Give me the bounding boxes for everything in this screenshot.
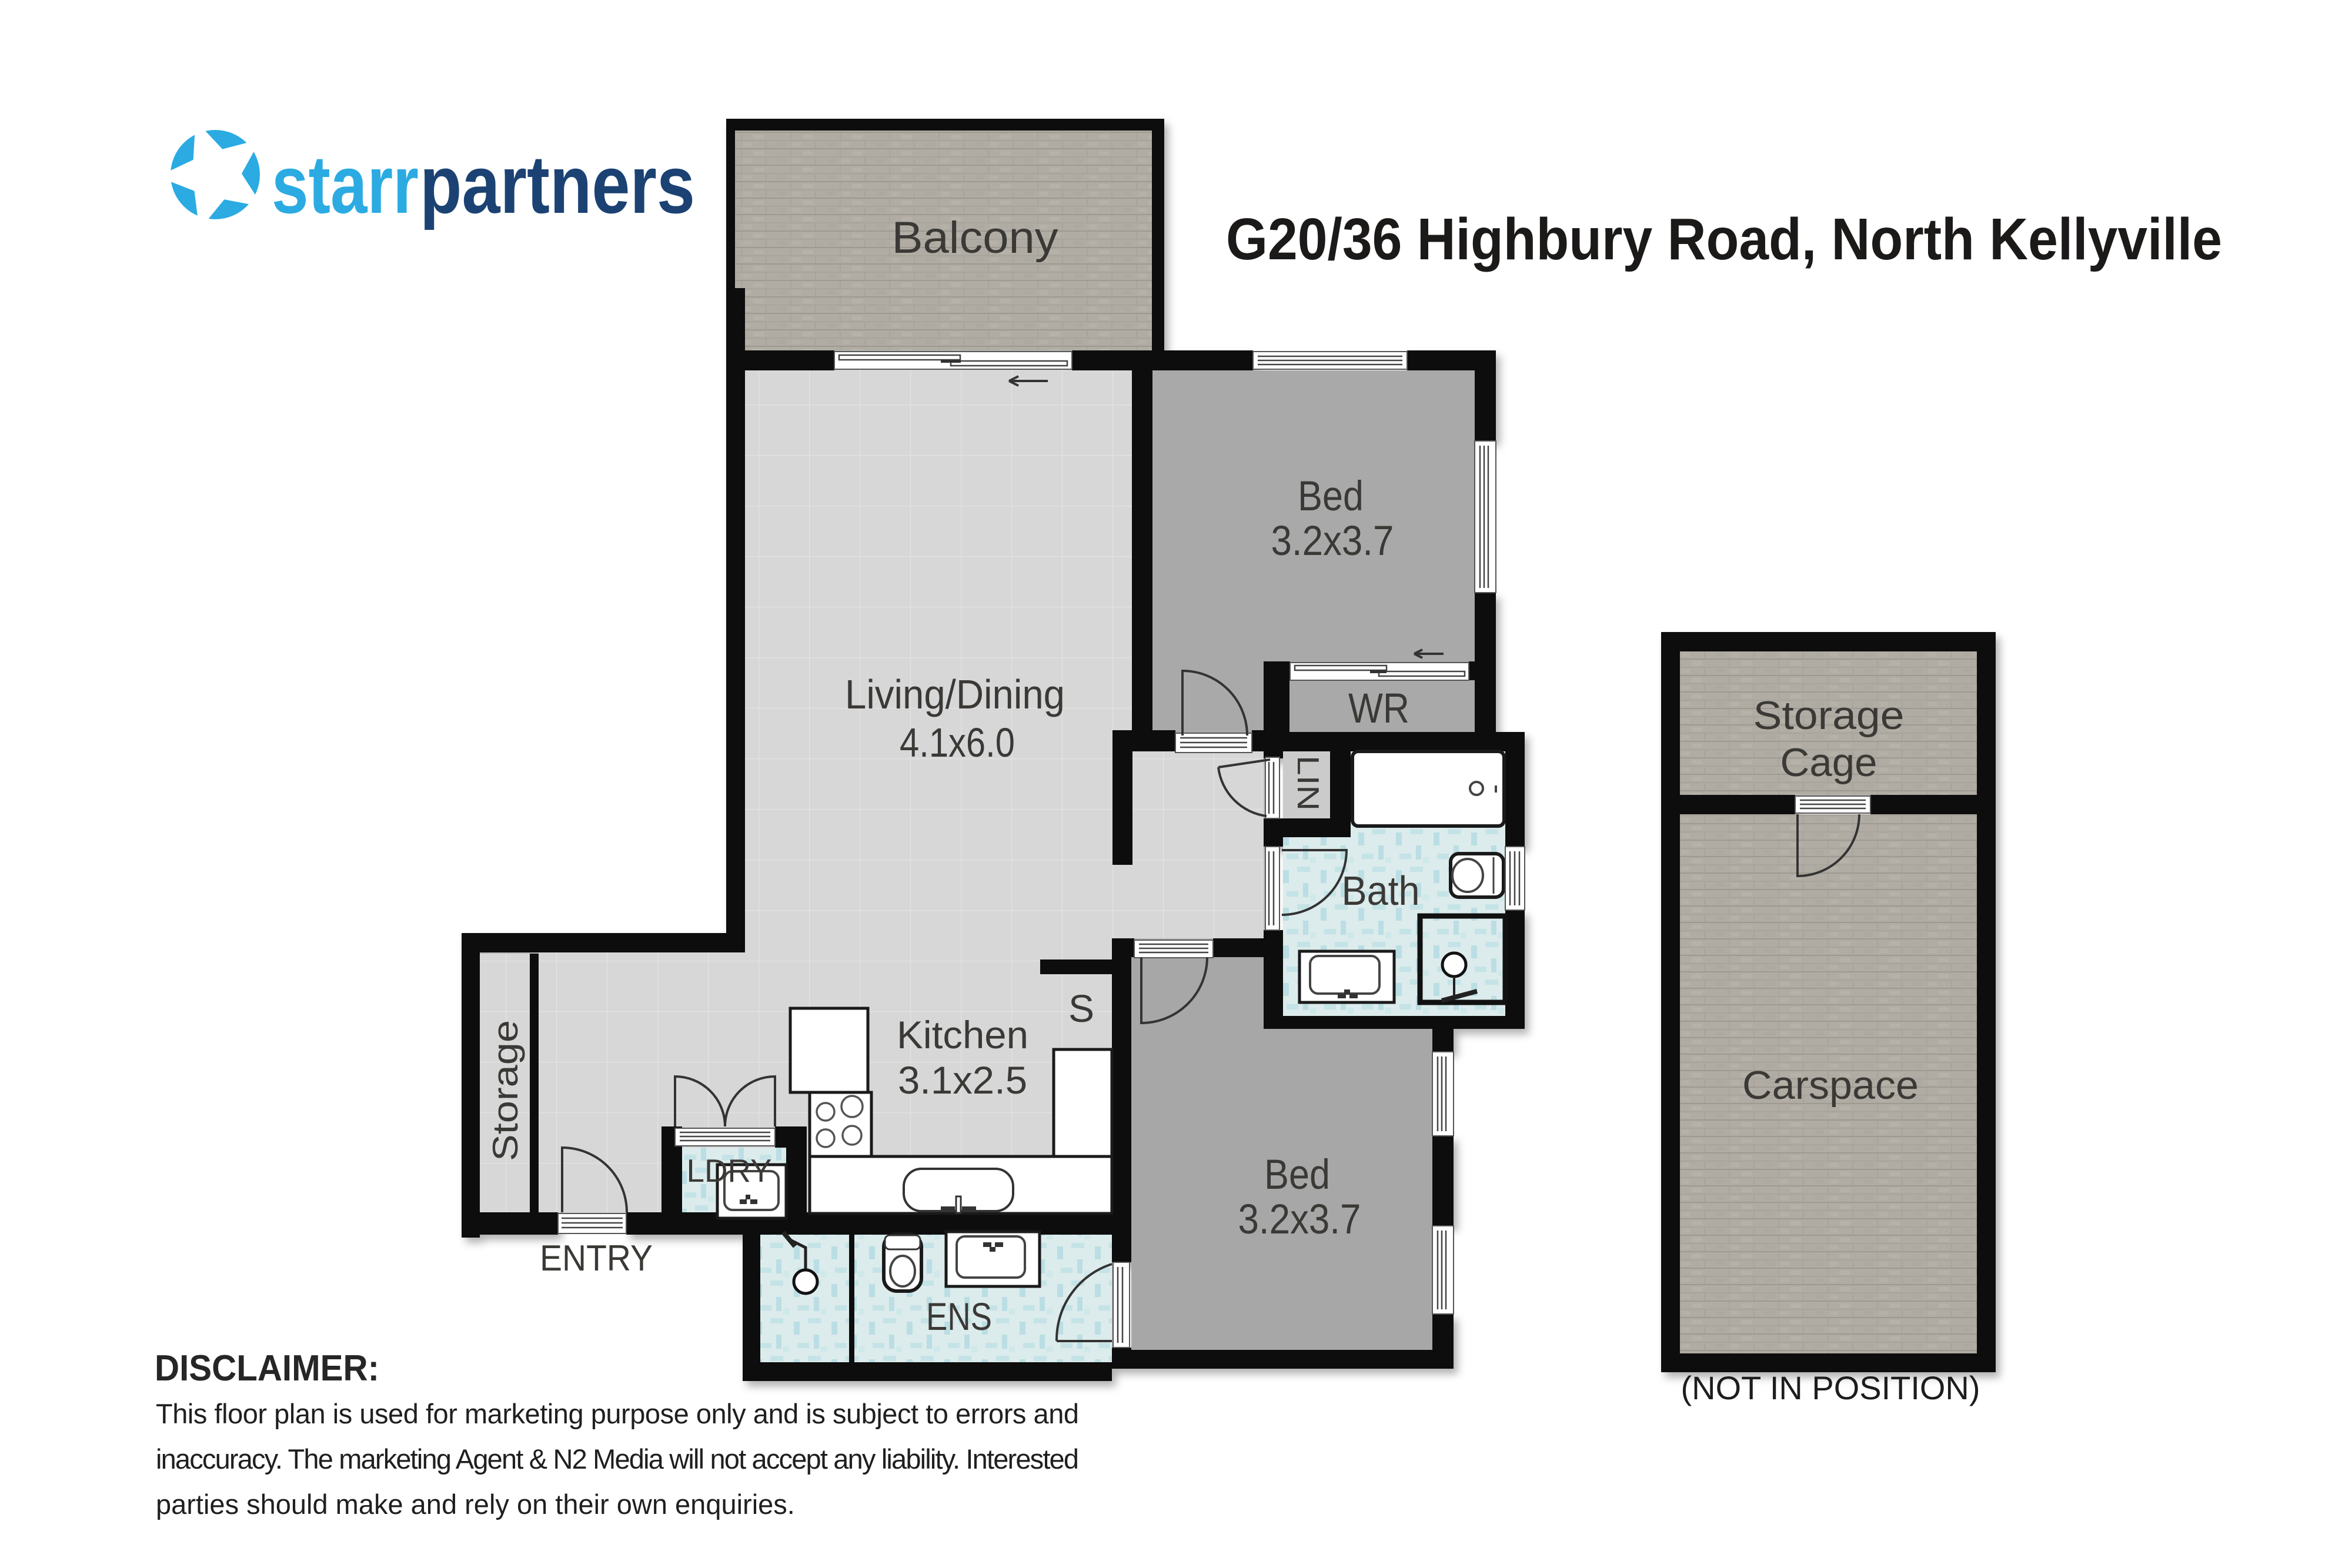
svg-text:ENS: ENS xyxy=(926,1295,992,1338)
svg-text:Storage: Storage xyxy=(486,1020,525,1161)
svg-text:Storage: Storage xyxy=(1753,693,1905,738)
svg-text:LDRY: LDRY xyxy=(687,1152,772,1189)
svg-text:inaccuracy. The marketing Agen: inaccuracy. The marketing Agent & N2 Med… xyxy=(156,1443,1079,1475)
svg-text:DISCLAIMER:: DISCLAIMER: xyxy=(155,1348,379,1389)
svg-text:Balcony: Balcony xyxy=(892,213,1058,263)
svg-text:Bath: Bath xyxy=(1342,868,1420,914)
svg-text:WR: WR xyxy=(1348,686,1409,732)
svg-text:Carspace: Carspace xyxy=(1742,1063,1919,1108)
svg-text:G20/36 Highbury Road, North Ke: G20/36 Highbury Road, North Kellyville xyxy=(1226,206,2222,272)
svg-text:Cage: Cage xyxy=(1780,740,1877,785)
svg-text:Bed: Bed xyxy=(1264,1152,1330,1198)
svg-text:Living/Dining: Living/Dining xyxy=(845,671,1065,717)
svg-text:3.1x2.5: 3.1x2.5 xyxy=(898,1058,1027,1102)
svg-text:Bed: Bed xyxy=(1298,473,1364,520)
svg-text:3.2x3.7: 3.2x3.7 xyxy=(1271,518,1394,564)
svg-text:3.2x3.7: 3.2x3.7 xyxy=(1238,1196,1361,1243)
svg-text:partners: partners xyxy=(420,138,695,230)
svg-text:This floor plan is used for ma: This floor plan is used for marketing pu… xyxy=(156,1398,1079,1429)
svg-text:S: S xyxy=(1068,987,1094,1030)
svg-text:starr: starr xyxy=(272,138,419,230)
svg-text:4.1x6.0: 4.1x6.0 xyxy=(900,720,1015,765)
svg-text:parties should make and rely o: parties should make and rely on their ow… xyxy=(156,1489,795,1520)
svg-text:ENTRY: ENTRY xyxy=(540,1238,653,1279)
svg-text:(NOT IN POSITION): (NOT IN POSITION) xyxy=(1681,1369,1980,1406)
svg-text:LIN: LIN xyxy=(1291,755,1325,811)
svg-text:Kitchen: Kitchen xyxy=(897,1013,1028,1057)
